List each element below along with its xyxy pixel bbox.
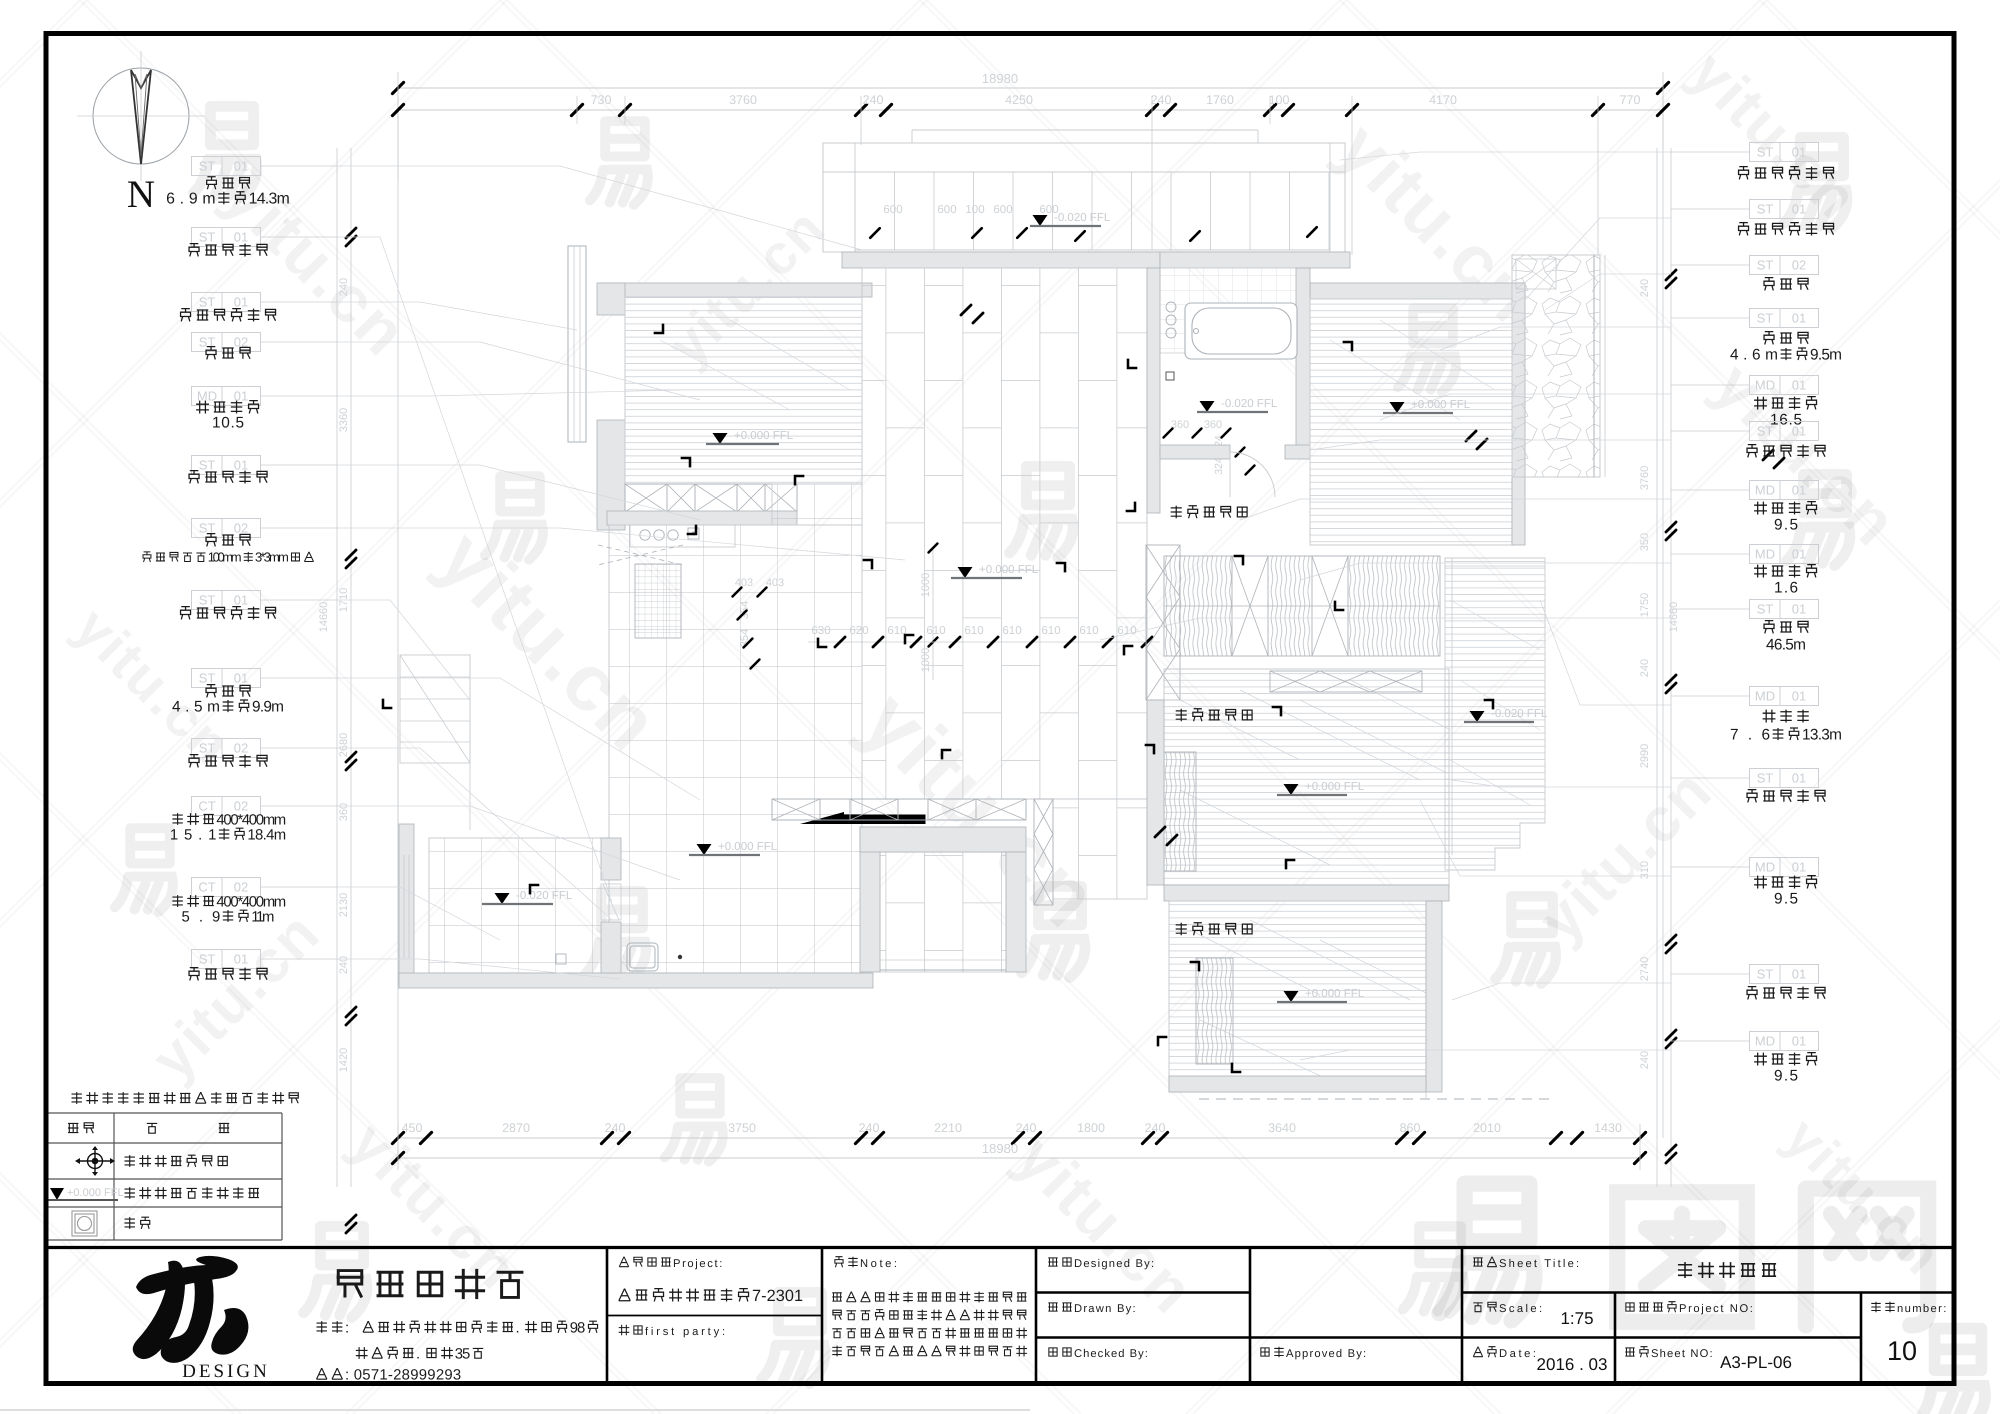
svg-text:310: 310 [1639,861,1651,879]
svg-text:CT: CT [198,799,215,814]
svg-text:610: 610 [964,625,983,637]
svg-text:Project NO:: Project NO: [1679,1303,1753,1315]
svg-text:240: 240 [863,93,884,107]
svg-text:.: . [416,1346,420,1362]
svg-text:MD: MD [1755,689,1775,704]
svg-text:100mm: 100mm [208,550,242,565]
svg-text:ST: ST [199,295,216,310]
svg-text:-0.020 FFL: -0.020 FFL [516,890,573,902]
svg-text:13.3m: 13.3m [1802,726,1842,743]
svg-text:4250: 4250 [1005,93,1033,107]
svg-text:-0.020 FFL: -0.020 FFL [1054,212,1111,224]
svg-text:01: 01 [1792,311,1806,326]
svg-text:3760: 3760 [1639,466,1651,490]
svg-text:630: 630 [811,625,830,637]
svg-text:240: 240 [1016,1121,1037,1135]
svg-text:01: 01 [234,593,248,608]
svg-text:A3-PL-06: A3-PL-06 [1720,1353,1792,1372]
svg-text:MD: MD [1755,1034,1775,1049]
svg-text:ST: ST [1757,202,1774,217]
svg-text:2990: 2990 [1639,744,1651,768]
svg-text:9.5: 9.5 [1774,890,1798,907]
svg-text:35: 35 [455,1346,471,1362]
svg-text:02: 02 [234,741,248,756]
svg-text:2010: 2010 [1473,1121,1501,1135]
svg-text:02: 02 [234,799,248,814]
svg-text:1:75: 1:75 [1560,1309,1593,1328]
svg-text:1750: 1750 [1639,593,1651,617]
svg-text::: : [345,1320,349,1336]
svg-text:1000: 1000 [920,648,932,672]
svg-text:ST: ST [1757,967,1774,982]
svg-text:02: 02 [1792,258,1806,273]
svg-text:730: 730 [591,93,612,107]
svg-text:620: 620 [849,625,868,637]
svg-text:01: 01 [1792,424,1806,439]
svg-text:ST: ST [1757,602,1774,617]
svg-text:1430: 1430 [1594,1121,1622,1135]
svg-text:01: 01 [1792,483,1806,498]
svg-text:610: 610 [926,625,945,637]
svg-text:+0.000 FFL: +0.000 FFL [1305,781,1365,793]
svg-text:7.6: 7.6 [1730,726,1770,743]
svg-text:01: 01 [1792,547,1806,562]
svg-text:610: 610 [1041,625,1060,637]
svg-text:01: 01 [1792,602,1806,617]
svg-text:02: 02 [234,880,248,895]
svg-text:4.6m: 4.6m [1730,346,1778,363]
svg-text:+0.000 FFL: +0.000 FFL [1305,988,1365,1000]
svg-text:ST: ST [199,593,216,608]
svg-text:2680: 2680 [338,733,350,757]
svg-text:5.9: 5.9 [182,909,221,925]
svg-text:240: 240 [1639,279,1651,297]
svg-text:+0.000 FFL: +0.000 FFL [67,1187,124,1199]
svg-text:100: 100 [1269,93,1290,107]
svg-text:01: 01 [1792,145,1806,160]
svg-text:MD: MD [1755,378,1775,393]
svg-text:01: 01 [234,295,248,310]
svg-text:ST: ST [1757,258,1774,273]
svg-text:350: 350 [1639,533,1651,551]
svg-text:01: 01 [1792,860,1806,875]
svg-text:10: 10 [1887,1336,1917,1366]
svg-text:9.5: 9.5 [1774,516,1798,533]
svg-text:2210: 2210 [934,1121,962,1135]
svg-text:Scale:: Scale: [1499,1303,1542,1315]
svg-text:first party:: first party: [645,1326,725,1338]
svg-text:1.6: 1.6 [1774,579,1798,596]
svg-text:ST: ST [1757,771,1774,786]
svg-text:Sheet NO:: Sheet NO: [1651,1348,1713,1360]
svg-text:610: 610 [1079,625,1098,637]
svg-text:240: 240 [338,278,350,296]
svg-text:+0.000 FFL: +0.000 FFL [718,841,778,853]
svg-text:7-2301: 7-2301 [752,1287,803,1305]
svg-text:450: 450 [402,1121,423,1135]
svg-text:6.9m: 6.9m [166,191,216,208]
svg-text:ST: ST [199,335,216,350]
svg-text:01: 01 [1792,689,1806,704]
svg-text:MD: MD [1755,483,1775,498]
svg-text:3360: 3360 [338,408,350,432]
svg-text:10.5: 10.5 [212,414,244,431]
svg-text:240: 240 [605,1121,626,1135]
svg-text:01: 01 [234,671,248,686]
svg-text:9.5: 9.5 [1774,1067,1798,1084]
svg-text:240: 240 [338,956,350,974]
svg-text:ST: ST [199,952,216,967]
svg-text:Sheet Title:: Sheet Title: [1499,1258,1579,1270]
svg-text:01: 01 [1792,771,1806,786]
svg-text:403: 403 [735,577,753,589]
svg-text:Drawn By:: Drawn By: [1074,1303,1136,1315]
svg-text:46.5m: 46.5m [1766,636,1806,653]
svg-text:ST: ST [199,458,216,473]
svg-text:14660: 14660 [1668,602,1680,633]
svg-text:01: 01 [1792,378,1806,393]
svg-text:98: 98 [570,1320,586,1336]
svg-text:4170: 4170 [1429,93,1457,107]
svg-text:ST: ST [1757,424,1774,439]
svg-text:Approved By:: Approved By: [1286,1348,1366,1360]
svg-text:14.3m: 14.3m [249,191,290,208]
svg-text:240: 240 [859,1121,880,1135]
svg-text:CT: CT [198,880,215,895]
svg-text:610: 610 [1002,625,1021,637]
svg-text:1000: 1000 [920,573,932,597]
svg-text:-0.020 FFL: -0.020 FFL [1491,708,1548,720]
svg-text:3760: 3760 [729,93,757,107]
svg-text:MD: MD [1755,860,1775,875]
svg-text:Checked By:: Checked By: [1074,1348,1148,1360]
svg-text:9.5m: 9.5m [1810,346,1842,363]
svg-text:400*400mm: 400*400mm [216,812,286,828]
svg-text:ST: ST [199,741,216,756]
svg-text:01: 01 [234,952,248,967]
svg-text:2016 . 03: 2016 . 03 [1537,1355,1608,1374]
svg-text:+0.000 FFL: +0.000 FFL [979,564,1039,576]
svg-text:18980: 18980 [982,71,1018,86]
svg-text:14660: 14660 [318,602,330,633]
svg-text:360: 360 [338,803,350,821]
svg-text:3750: 3750 [728,1121,756,1135]
svg-text:600: 600 [883,204,902,216]
svg-text:01: 01 [1792,202,1806,217]
svg-text:ST: ST [1757,311,1774,326]
svg-text:1420: 1420 [338,1048,350,1072]
svg-text:3*3mm: 3*3mm [255,550,289,565]
svg-text:400*400mm: 400*400mm [216,894,286,910]
svg-text:403: 403 [766,577,784,589]
svg-text:18.4m: 18.4m [247,827,286,843]
svg-text:2130: 2130 [338,893,350,917]
svg-text:N: N [127,173,155,216]
svg-text:100: 100 [965,204,984,216]
svg-text:11m: 11m [251,909,274,925]
svg-text:01: 01 [234,230,248,245]
svg-text:ST: ST [199,230,216,245]
svg-text:.: . [516,1320,520,1336]
svg-text:600: 600 [993,204,1012,216]
svg-text:Designed By:: Designed By: [1074,1258,1154,1270]
svg-text:1760: 1760 [1206,93,1234,107]
svg-text:324: 324 [1213,457,1225,475]
svg-text:ST: ST [199,671,216,686]
svg-text:2870: 2870 [502,1121,530,1135]
svg-text:01: 01 [1792,1034,1806,1049]
svg-text:770: 770 [1620,93,1641,107]
svg-text:01: 01 [234,458,248,473]
svg-text:Project:: Project: [673,1258,722,1270]
svg-text:ST: ST [199,159,216,174]
svg-text:+0.000 FFL: +0.000 FFL [734,430,794,442]
svg-text:4.5m: 4.5m [172,698,220,715]
svg-text:-0.020 FFL: -0.020 FFL [1221,398,1278,410]
svg-text:240: 240 [1639,1051,1651,1069]
svg-text:240: 240 [1145,1121,1166,1135]
svg-text:600: 600 [937,204,956,216]
svg-text:MD: MD [1755,547,1775,562]
svg-text:01: 01 [1792,967,1806,982]
svg-text:610: 610 [887,625,906,637]
svg-text:360: 360 [1204,419,1222,431]
svg-text:860: 860 [1400,1121,1421,1135]
svg-text:: 0571-28999293: : 0571-28999293 [345,1367,461,1383]
svg-text:ST: ST [1757,145,1774,160]
svg-text:DESIGN: DESIGN [182,1361,270,1382]
svg-text:240: 240 [1639,659,1651,677]
svg-text:9.9m: 9.9m [252,698,284,715]
svg-text:360: 360 [1171,419,1189,431]
svg-text:2740: 2740 [1639,957,1651,981]
svg-text:01: 01 [234,159,248,174]
svg-text:18980: 18980 [982,1141,1018,1156]
svg-text:02: 02 [234,521,248,536]
svg-text:3640: 3640 [1268,1121,1296,1135]
svg-text:240: 240 [1151,93,1172,107]
svg-text:1800: 1800 [1077,1121,1105,1135]
